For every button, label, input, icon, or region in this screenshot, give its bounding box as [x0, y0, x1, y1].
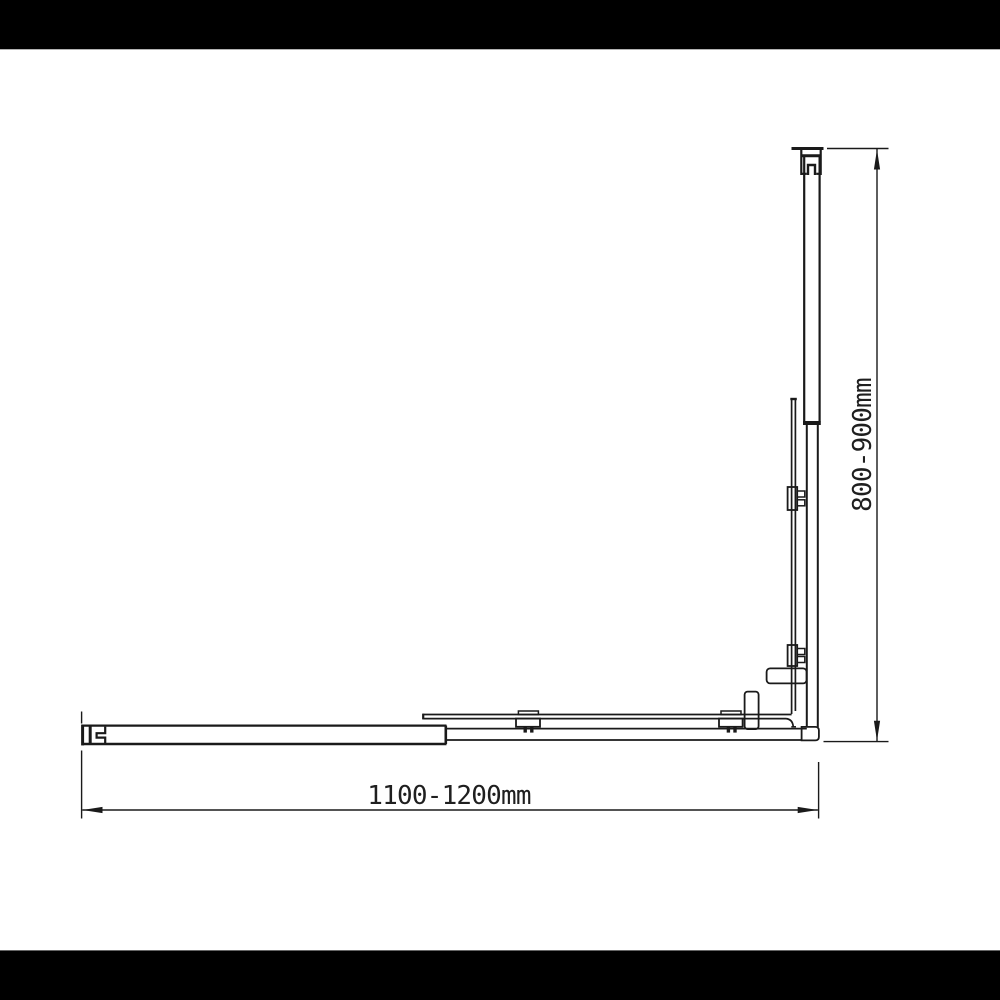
shower-screen-plan-drawing: 800-900mm 1100-1200mm — [0, 0, 1000, 1000]
letterbox-bottom — [0, 950, 1000, 1000]
height-dimension-label: 800-900mm — [848, 378, 878, 512]
letterbox-top — [0, 0, 1000, 49]
width-dimension-label: 1100-1200mm — [367, 781, 531, 811]
technical-drawing-page: 800-900mm 1100-1200mm — [0, 0, 1000, 1000]
